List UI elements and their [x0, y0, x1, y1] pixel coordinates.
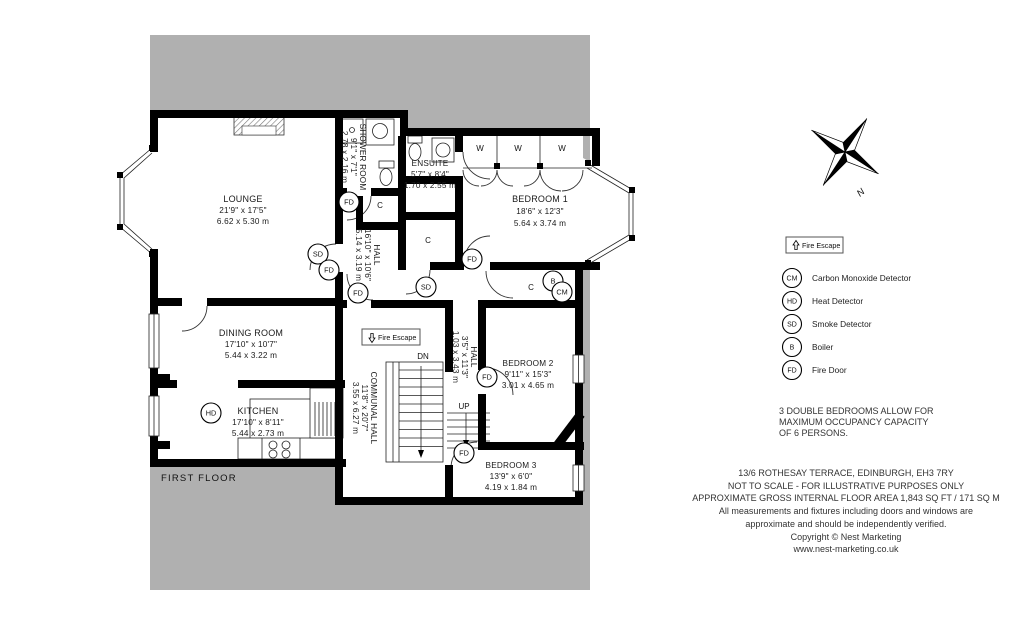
fire-door-marker: FD — [324, 266, 334, 275]
smoke-detector-marker: SD — [313, 250, 323, 259]
svg-text:Smoke Detector: Smoke Detector — [812, 319, 872, 329]
svg-text:3.01 x 4.65 m: 3.01 x 4.65 m — [502, 381, 554, 390]
svg-text:Carbon Monoxide Detector: Carbon Monoxide Detector — [812, 273, 911, 283]
svg-text:5.64 x 3.74 m: 5.64 x 3.74 m — [514, 219, 566, 228]
svg-text:BEDROOM 1: BEDROOM 1 — [512, 194, 568, 204]
disclaimer-line: All measurements and fixtures including … — [719, 506, 973, 516]
svg-text:Boiler: Boiler — [812, 342, 833, 352]
svg-text:COMMUNAL HALL: COMMUNAL HALL — [369, 372, 378, 445]
fire-door-marker: FD — [467, 255, 477, 264]
fire-door-marker: FD — [344, 198, 354, 207]
svg-text:OF 6 PERSONS.: OF 6 PERSONS. — [779, 428, 848, 438]
wardrobe-label: W — [476, 144, 484, 153]
svg-text:BEDROOM 2: BEDROOM 2 — [503, 359, 554, 368]
svg-text:Fire Door: Fire Door — [812, 365, 847, 375]
compass-icon: N — [790, 97, 901, 208]
room-bedroom1: BEDROOM 1 18'6" x 12'3" 5.64 x 3.74 m — [512, 194, 568, 228]
svg-text:SD: SD — [787, 322, 797, 329]
floor-label: FIRST FLOOR — [161, 473, 237, 484]
disclaimer-line: approximate and should be independently … — [745, 519, 946, 529]
svg-text:B: B — [790, 345, 795, 352]
legend-item-sd: SD Smoke Detector — [783, 315, 872, 334]
legend-item-hd: HD Heat Detector — [783, 292, 864, 311]
svg-text:9'11" x 15'3": 9'11" x 15'3" — [505, 370, 552, 379]
stairs-down — [386, 362, 443, 462]
shower-room-wc — [379, 161, 394, 168]
room-lounge: LOUNGE 21'9" x 17'5" 6.62 x 5.30 m — [217, 194, 269, 226]
lounge-name: LOUNGE — [223, 194, 262, 204]
lounge-imperial: 21'9" x 17'5" — [219, 206, 267, 215]
svg-text:5.44 x 3.22 m: 5.44 x 3.22 m — [225, 351, 277, 360]
svg-text:5.44 x 2.73 m: 5.44 x 2.73 m — [232, 429, 284, 438]
copyright: Copyright © Nest Marketing — [791, 532, 902, 542]
svg-text:FD: FD — [787, 368, 796, 375]
svg-text:13'9" x 6'0": 13'9" x 6'0" — [490, 472, 533, 481]
svg-text:5'7" x 8'4": 5'7" x 8'4" — [411, 170, 449, 179]
svg-text:Heat Detector: Heat Detector — [812, 296, 863, 306]
svg-text:KITCHEN: KITCHEN — [238, 406, 279, 416]
fire-door-marker: FD — [459, 449, 469, 458]
legend-item-b: B Boiler — [783, 338, 834, 357]
svg-text:4.19 x 1.84 m: 4.19 x 1.84 m — [485, 483, 537, 492]
legend-item-cm: CM Carbon Monoxide Detector — [783, 269, 912, 288]
fire-door-marker: FD — [482, 373, 492, 382]
fire-escape-plan-label: Fire Escape — [378, 333, 416, 342]
svg-text:HD: HD — [787, 299, 797, 306]
shower-room-sink — [366, 119, 394, 145]
address-line: 13/6 ROTHESAY TERRACE, EDINBURGH, EH3 7R… — [738, 468, 953, 478]
svg-text:HALL: HALL — [469, 346, 478, 368]
svg-text:HALL: HALL — [372, 244, 381, 266]
svg-text:11'8" x 20'7": 11'8" x 20'7" — [360, 385, 369, 432]
cupboard-label: C — [528, 283, 534, 292]
website: www.nest-marketing.co.uk — [792, 544, 899, 554]
svg-text:SHOWER ROOM: SHOWER ROOM — [358, 124, 367, 191]
smoke-detector-marker: SD — [421, 283, 431, 292]
cupboard-label: C — [425, 236, 431, 245]
heat-detector-marker: HD — [206, 409, 217, 418]
stairs-up-label: UP — [458, 402, 469, 411]
scale-note: NOT TO SCALE - FOR ILLUSTRATIVE PURPOSES… — [728, 481, 964, 491]
room-kitchen: KITCHEN 17'10" x 8'11" 5.44 x 2.73 m — [232, 406, 284, 438]
cupboard-label: C — [377, 201, 383, 210]
wardrobe-label: W — [558, 144, 566, 153]
legend-fire-escape: Fire Escape — [786, 237, 843, 253]
svg-text:3.55 x 6.27 m: 3.55 x 6.27 m — [351, 382, 360, 434]
legend-item-fd: FD Fire Door — [783, 361, 847, 380]
svg-text:3'5" x 11'3": 3'5" x 11'3" — [460, 336, 469, 378]
occupancy-note: 3 DOUBLE BEDROOMS ALLOW FOR MAXIMUM OCCU… — [779, 406, 934, 438]
svg-text:18'6" x 12'3": 18'6" x 12'3" — [516, 207, 564, 216]
svg-text:1.70 x 2.55 m: 1.70 x 2.55 m — [404, 181, 456, 190]
fire-escape-sign-plan: Fire Escape — [362, 329, 420, 345]
floorplan-canvas: Fire Escape LOUNGE 21'9" x 17'5" 6.62 x … — [0, 0, 1024, 640]
svg-text:MAXIMUM OCCUPANCY CAPACITY: MAXIMUM OCCUPANCY CAPACITY — [779, 417, 929, 427]
room-ensuite: ENSUITE 5'7" x 8'4" 1.70 x 2.55 m — [404, 159, 456, 190]
svg-text:17'10" x 8'11": 17'10" x 8'11" — [232, 418, 284, 427]
svg-text:CM: CM — [787, 276, 798, 283]
north-label: N — [855, 186, 867, 199]
legend: Fire Escape CM Carbon Monoxide Detector … — [783, 237, 912, 380]
room-dining: DINING ROOM 17'10" x 10'7" 5.44 x 3.22 m — [219, 328, 283, 360]
svg-text:3 DOUBLE BEDROOMS ALLOW FOR: 3 DOUBLE BEDROOMS ALLOW FOR — [779, 406, 934, 416]
svg-text:5.14 x 3.19 m: 5.14 x 3.19 m — [354, 229, 363, 281]
svg-text:DINING ROOM: DINING ROOM — [219, 328, 283, 338]
address-block: 13/6 ROTHESAY TERRACE, EDINBURGH, EH3 7R… — [692, 468, 999, 554]
area-note: APPROXIMATE GROSS INTERNAL FLOOR AREA 1,… — [692, 493, 999, 503]
carbon-monoxide-marker: CM — [556, 288, 567, 297]
svg-text:ENSUITE: ENSUITE — [412, 159, 449, 168]
room-bedroom3: BEDROOM 3 13'9" x 6'0" 4.19 x 1.84 m — [485, 461, 537, 492]
svg-text:17'10" x 10'7": 17'10" x 10'7" — [225, 340, 277, 349]
svg-text:16'10" x 10'6": 16'10" x 10'6" — [363, 229, 372, 281]
ensuite-wc — [408, 136, 422, 143]
svg-text:9'1" x 7'1": 9'1" x 7'1" — [349, 138, 358, 176]
svg-text:1.03 x 3.43 m: 1.03 x 3.43 m — [451, 331, 460, 383]
room-bedroom2: BEDROOM 2 9'11" x 15'3" 3.01 x 4.65 m — [502, 359, 554, 390]
svg-text:2.78 x 2.16 m: 2.78 x 2.16 m — [340, 131, 349, 183]
stairs-down-label: DN — [417, 352, 429, 361]
wardrobe-label: W — [514, 144, 522, 153]
lounge-metric: 6.62 x 5.30 m — [217, 217, 269, 226]
fire-escape-legend-label: Fire Escape — [802, 241, 840, 250]
fire-door-marker: FD — [353, 289, 363, 298]
svg-text:BEDROOM 3: BEDROOM 3 — [486, 461, 537, 470]
